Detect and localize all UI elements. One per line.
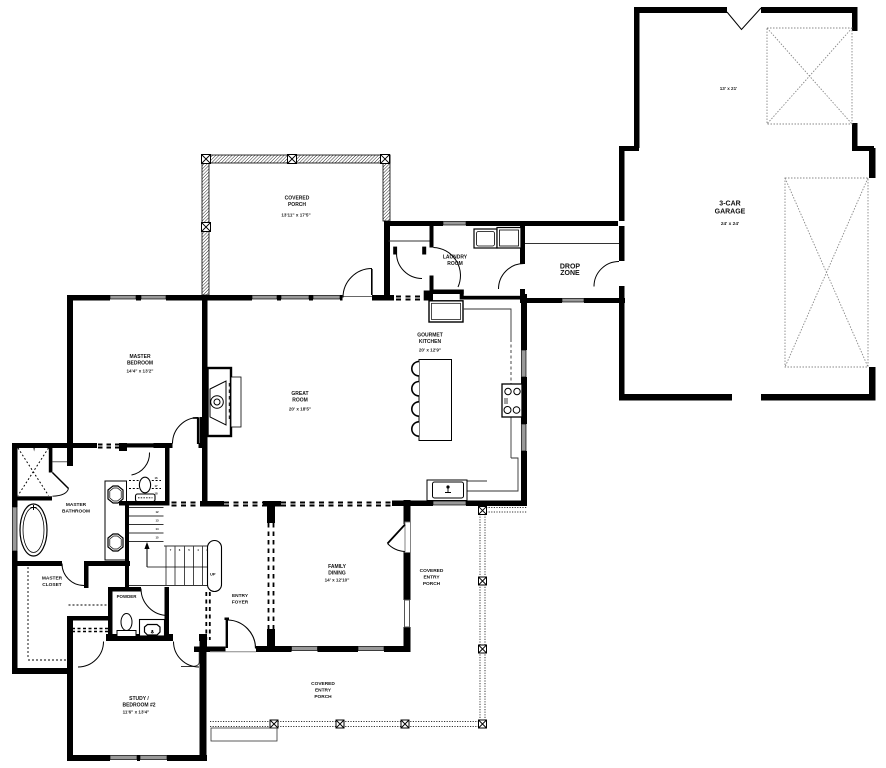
svg-text:20' x 12'9": 20' x 12'9" bbox=[419, 348, 441, 353]
svg-text:DINING: DINING bbox=[328, 571, 346, 577]
svg-text:GARAGE: GARAGE bbox=[715, 209, 746, 216]
svg-text:FOYER: FOYER bbox=[232, 600, 249, 606]
svg-text:13' x 21': 13' x 21' bbox=[720, 86, 738, 91]
svg-text:GREAT: GREAT bbox=[291, 391, 308, 397]
svg-text:12: 12 bbox=[155, 510, 159, 514]
svg-text:16: 16 bbox=[154, 476, 158, 480]
svg-text:13: 13 bbox=[155, 519, 159, 523]
svg-text:11'6" x 13'4": 11'6" x 13'4" bbox=[123, 710, 150, 715]
svg-text:18: 18 bbox=[154, 492, 158, 496]
svg-text:15: 15 bbox=[155, 536, 159, 540]
svg-text:CLOSET: CLOSET bbox=[42, 582, 62, 588]
svg-text:ENTRY: ENTRY bbox=[232, 593, 249, 599]
svg-text:14' x 12'10": 14' x 12'10" bbox=[325, 578, 350, 583]
svg-text:GOURMET: GOURMET bbox=[417, 333, 443, 339]
svg-text:KITCHEN: KITCHEN bbox=[419, 339, 442, 345]
svg-text:24' x 24': 24' x 24' bbox=[721, 221, 739, 227]
svg-text:BEDROOM #2: BEDROOM #2 bbox=[122, 703, 155, 709]
svg-text:UP: UP bbox=[210, 572, 216, 577]
svg-text:PORCH: PORCH bbox=[314, 694, 332, 700]
svg-text:LAUNDRY: LAUNDRY bbox=[443, 255, 468, 261]
svg-text:COVERED: COVERED bbox=[285, 196, 310, 202]
svg-text:BATHROOM: BATHROOM bbox=[62, 509, 90, 515]
svg-text:COVERED: COVERED bbox=[420, 568, 444, 574]
svg-text:ZONE: ZONE bbox=[560, 270, 580, 277]
svg-text:MASTER: MASTER bbox=[42, 576, 63, 582]
svg-text:MASTER: MASTER bbox=[129, 354, 151, 360]
svg-text:ROOM: ROOM bbox=[447, 261, 463, 267]
svg-text:ROOM: ROOM bbox=[292, 398, 308, 404]
svg-text:COVERED: COVERED bbox=[311, 681, 335, 687]
svg-text:13'11" x 17'5": 13'11" x 17'5" bbox=[281, 213, 310, 218]
svg-text:14'4" x 13'2": 14'4" x 13'2" bbox=[127, 369, 154, 374]
svg-text:20' x 18'5": 20' x 18'5" bbox=[289, 407, 311, 412]
svg-text:MASTER: MASTER bbox=[66, 502, 87, 508]
svg-text:3-CAR: 3-CAR bbox=[719, 201, 740, 208]
svg-text:BEDROOM: BEDROOM bbox=[127, 361, 153, 367]
svg-text:17: 17 bbox=[154, 484, 158, 488]
svg-text:STUDY /: STUDY / bbox=[129, 696, 149, 702]
svg-text:PORCH: PORCH bbox=[423, 581, 441, 587]
svg-text:POWDER: POWDER bbox=[117, 594, 138, 599]
svg-text:FAMILY: FAMILY bbox=[328, 564, 347, 570]
svg-text:14: 14 bbox=[155, 527, 159, 531]
svg-text:ENTRY: ENTRY bbox=[423, 575, 440, 581]
svg-text:ENTRY: ENTRY bbox=[315, 688, 332, 694]
svg-text:PORCH: PORCH bbox=[288, 202, 306, 208]
